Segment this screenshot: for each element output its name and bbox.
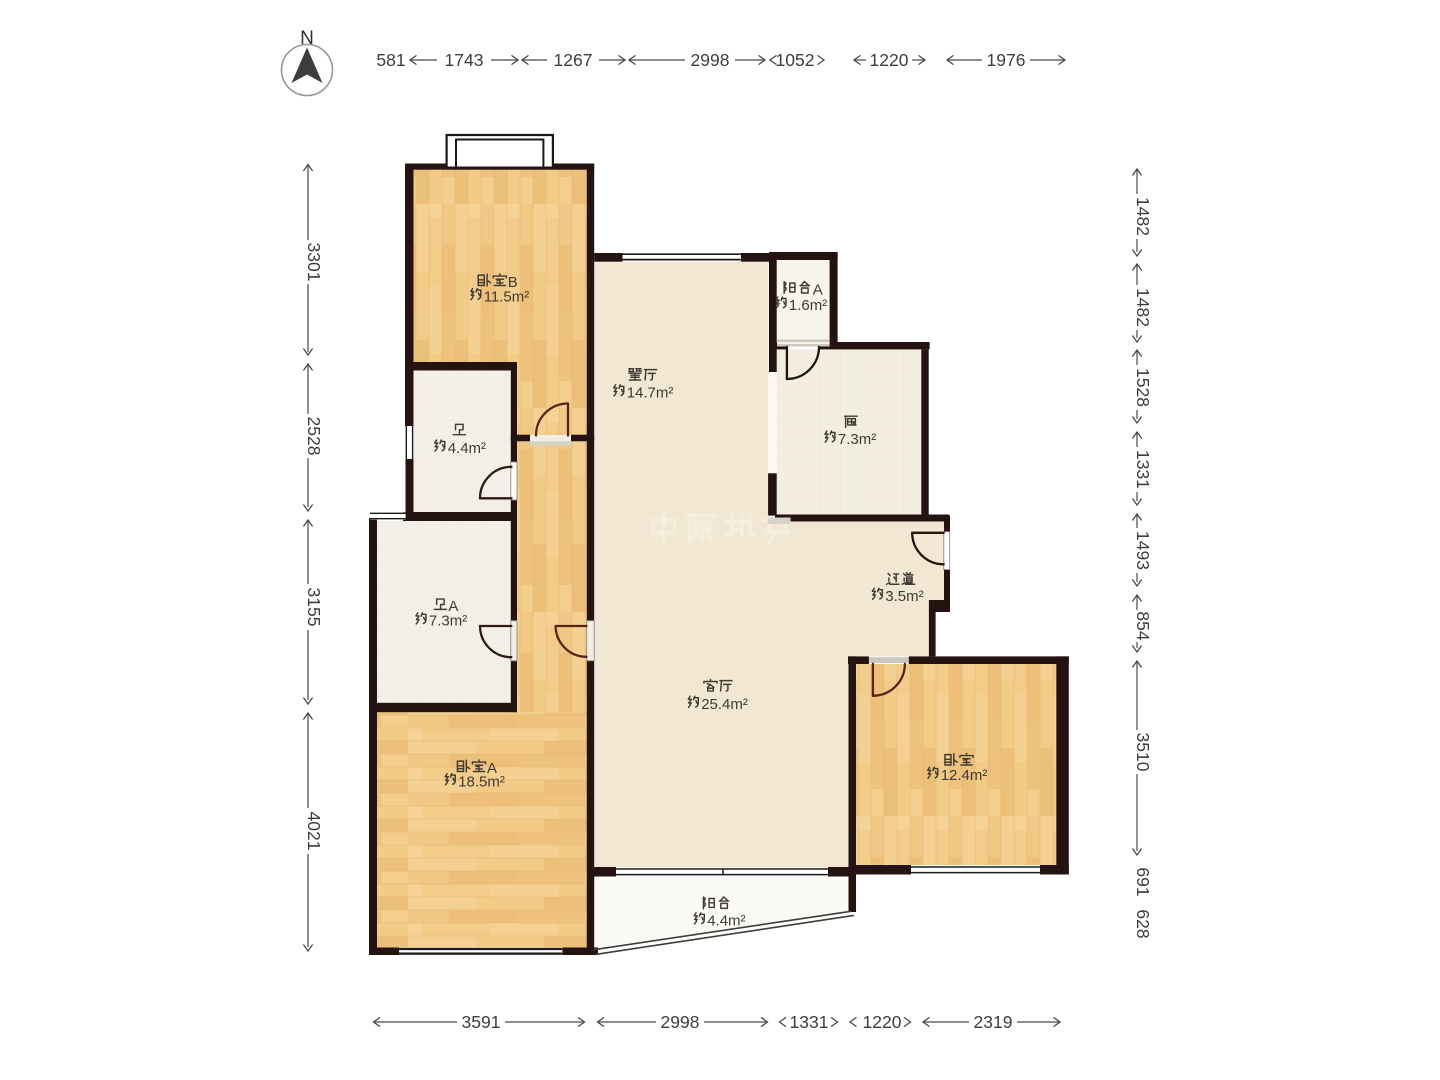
svg-text:4.4m²: 4.4m² bbox=[707, 913, 745, 930]
svg-text:628: 628 bbox=[1133, 909, 1153, 938]
svg-text:12.4m²: 12.4m² bbox=[941, 767, 988, 784]
svg-text:14.7m²: 14.7m² bbox=[627, 385, 674, 402]
svg-text:4021: 4021 bbox=[304, 812, 324, 851]
svg-text:3510: 3510 bbox=[1133, 733, 1153, 772]
svg-text:1976: 1976 bbox=[987, 50, 1026, 70]
svg-text:3301: 3301 bbox=[304, 243, 324, 282]
svg-text:2998: 2998 bbox=[661, 1012, 700, 1032]
svg-text:7.3m²: 7.3m² bbox=[838, 431, 876, 448]
svg-text:2319: 2319 bbox=[974, 1012, 1013, 1032]
svg-text:1528: 1528 bbox=[1133, 368, 1153, 407]
svg-text:N: N bbox=[300, 28, 314, 49]
svg-text:1052: 1052 bbox=[776, 50, 815, 70]
svg-text:1267: 1267 bbox=[554, 50, 593, 70]
svg-text:1482: 1482 bbox=[1133, 288, 1153, 327]
svg-text:1331: 1331 bbox=[790, 1012, 829, 1032]
svg-text:2528: 2528 bbox=[304, 417, 324, 456]
svg-text:11.5m²: 11.5m² bbox=[484, 288, 530, 305]
svg-text:581: 581 bbox=[376, 50, 405, 70]
svg-text:1493: 1493 bbox=[1133, 531, 1153, 570]
svg-text:691: 691 bbox=[1133, 867, 1153, 896]
svg-text:1220: 1220 bbox=[870, 50, 909, 70]
svg-text:18.5m²: 18.5m² bbox=[458, 774, 505, 791]
svg-text:25.4m²: 25.4m² bbox=[701, 696, 748, 713]
svg-text:1331: 1331 bbox=[1133, 450, 1153, 489]
svg-text:1220: 1220 bbox=[863, 1012, 902, 1032]
svg-text:A: A bbox=[813, 281, 823, 298]
svg-text:854: 854 bbox=[1133, 611, 1153, 640]
svg-text:7.3m²: 7.3m² bbox=[429, 613, 467, 630]
svg-text:3591: 3591 bbox=[462, 1012, 501, 1032]
svg-text:4.4m²: 4.4m² bbox=[448, 440, 486, 457]
svg-text:CENTALINE PROPERTY: CENTALINE PROPERTY bbox=[642, 549, 794, 560]
svg-text:1482: 1482 bbox=[1133, 197, 1153, 236]
svg-text:2998: 2998 bbox=[691, 50, 730, 70]
svg-text:3.5m²: 3.5m² bbox=[885, 588, 923, 605]
svg-text:3155: 3155 bbox=[304, 588, 324, 627]
svg-text:1.6m²: 1.6m² bbox=[789, 297, 827, 314]
svg-text:1743: 1743 bbox=[445, 50, 484, 70]
